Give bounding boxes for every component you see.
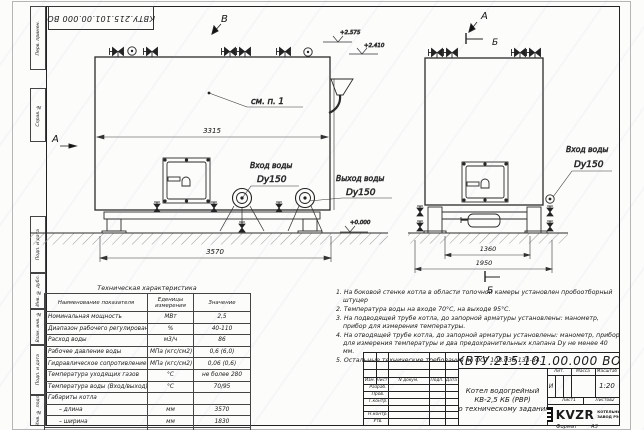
boiler-body-front (425, 58, 543, 205)
tech-th-units: Еденицы измерения (148, 294, 194, 312)
drawing-designation: КВТУ.215.101.00.000 ВО (458, 353, 619, 368)
cell: 70/95 (194, 381, 251, 393)
lit-header: Лит. (547, 368, 571, 375)
cell: не более 280 (194, 369, 251, 381)
scale-header: Масштаб (595, 368, 619, 375)
title-block: Изм. Лист N докум. Подп. Дата Разраб. Пр… (363, 352, 620, 426)
inlet-right-label-1: Вход воды (566, 145, 608, 154)
inlet-left-label-1: Вход воды (250, 161, 292, 170)
sheets-cell: Листов 2 (583, 397, 627, 404)
outlet-label-2: Dy150 (346, 188, 376, 198)
cell: Гидравлическое сопротивление котла (45, 358, 148, 370)
pipe-valve-icon (417, 206, 423, 216)
logo-subtext: КОТЕЛЬНЫЙ ЗАВОД РЭП (597, 410, 619, 419)
cell (194, 393, 251, 405)
scale-value: 1:20 (595, 375, 619, 397)
logo-sub-line2: ЗАВОД РЭП (597, 415, 619, 419)
tech-th-name: Наименование показателя (45, 294, 148, 312)
callout-see-note: см. п. 1 (251, 97, 284, 107)
product-name-line3: по техническому заданию (458, 405, 547, 414)
cell: м3/ч (148, 335, 194, 347)
support-skid-front (424, 207, 547, 233)
pipe-valve-icon (547, 206, 553, 216)
cell: МПа (кгс/см2) (148, 358, 194, 370)
pipe-valve-icon (417, 221, 423, 231)
valve-icon (222, 48, 236, 58)
valve-icon (444, 49, 458, 59)
valve-icon (277, 48, 291, 58)
cell: 0,6 (6,0) (194, 346, 251, 358)
cell: мм (148, 416, 194, 428)
table-row: Диапазон рабочего регулирования%40-110 (45, 323, 251, 335)
view-arrow-a: А (51, 134, 59, 145)
table-row: Расход водым3/ч86 (45, 335, 251, 347)
tech-th-value: Значение (194, 294, 251, 312)
cell: 86 (194, 335, 251, 347)
valve-icon (512, 49, 526, 59)
cell: 0,06 (0,6) (194, 358, 251, 370)
outlet-label-1: Выход воды (336, 174, 384, 183)
kvzr-logo: KVZR КОТЕЛЬНЫЙ ЗАВОД РЭП (547, 407, 619, 422)
front-view (408, 49, 568, 244)
sheet-value: 1 (573, 398, 576, 403)
flue-spout (329, 95, 340, 113)
lit-value: И (547, 375, 555, 397)
sheets-label: Листов (595, 398, 611, 403)
dim-3315: 3315 (203, 127, 221, 135)
drain-valve-icon (211, 202, 217, 212)
inlet-flange (233, 189, 252, 208)
valve-icon (527, 49, 541, 59)
rev-header-izm: Изм. (364, 377, 376, 384)
tech-table-header-row: Наименование показателя Еденицы измерени… (45, 294, 251, 312)
valve-icon (144, 48, 158, 58)
valve-icon (110, 48, 124, 58)
cell: МПа (кгс/см2) (148, 346, 194, 358)
elevation-2575: +2.575 (340, 30, 361, 36)
drain-valve-icon (239, 222, 245, 232)
furnace-door-front (462, 162, 508, 202)
elevation-marks: +2.575 +2.410 +0.000 (323, 30, 385, 232)
dim-1360: 1360 (480, 245, 497, 253)
cell: Номинальная мощность (45, 312, 148, 324)
cell: 1830 (194, 416, 251, 428)
cell: % (148, 323, 194, 335)
cell: мм (148, 404, 194, 416)
cell: Температура воды (Вход/выход) (45, 381, 148, 393)
inlet-right-label-2: Dy150 (574, 160, 604, 170)
cell: 40-110 (194, 323, 251, 335)
table-row: Габариты котла (45, 393, 251, 405)
table-row: Рабочее давление водыМПа (кгс/см2)0,6 (6… (45, 346, 251, 358)
table-row: Температура уходящих газов°Сне более 280 (45, 369, 251, 381)
tech-table: Наименование показателя Еденицы измерени… (44, 293, 251, 430)
inlet-left-label-2: Dy150 (257, 175, 287, 185)
annotations: см. п. 1 Вход воды Dy150 Выход воды Dy15… (208, 92, 612, 201)
elevation-0000: +0.000 (350, 220, 371, 226)
company-logo-cell: KVZR КОТЕЛЬНЫЙ ЗАВОД РЭП (547, 404, 619, 425)
table-row: Температура воды (Вход/выход)°С70/95 (45, 381, 251, 393)
table-row: – длинамм3570 (45, 404, 251, 416)
drain-valve-icon (276, 202, 282, 212)
cell (148, 393, 194, 405)
cell: °С (148, 369, 194, 381)
cell: Расход воды (45, 335, 148, 347)
cell: Диапазон рабочего регулирования (45, 323, 148, 335)
cell: – ширина (45, 416, 148, 428)
role-prov: Пров. (364, 391, 390, 398)
view-label-a: А (480, 11, 488, 22)
format-note: ФорматА3 (556, 424, 636, 430)
product-name: Котел водогрейный КВ-2,5 КБ (РВР) по тех… (458, 368, 547, 429)
cell: °С (148, 381, 194, 393)
format-value: А3 (591, 424, 598, 430)
tech-table-title: Техническая характеристика (44, 284, 250, 292)
role-utv: Утв. (364, 418, 390, 425)
valve-icon (429, 49, 443, 59)
cell: Температура уходящих газов (45, 369, 148, 381)
note-1: 1. На боковой стенке котла в области топ… (336, 289, 620, 305)
table-row: Гидравлическое сопротивление котлаМПа (к… (45, 358, 251, 370)
note-2: 2. Температура воды на входе 70°С, на вы… (336, 306, 620, 314)
rev-header-ndokum: N докум. (388, 377, 429, 384)
role-tkontr: Т.контр. (364, 398, 390, 405)
view-label-v: В (221, 14, 228, 25)
sheet-label: Лист (562, 398, 573, 403)
outlet-flange (296, 189, 315, 208)
role-nkontr: Н.контр. (364, 411, 390, 418)
rev-header-data: Дата (445, 377, 458, 384)
drawing-sheet: Перв. примен. Справ. № Подп. и дата Инв.… (0, 0, 644, 430)
valve-icon (237, 48, 251, 58)
ground-hatch (408, 234, 568, 244)
kvzr-emblem-icon (547, 407, 553, 422)
cell: – длина (45, 404, 148, 416)
ground-hatch (30, 234, 388, 245)
cell: 3570 (194, 404, 251, 416)
pipe-valve-icon (547, 221, 553, 231)
dim-3570: 3570 (206, 248, 224, 256)
cell: Рабочее давление воды (45, 346, 148, 358)
gauge-icon (304, 48, 312, 56)
format-label: Формат (556, 424, 577, 430)
dim-1950: 1950 (476, 259, 493, 267)
note-3: 3. На подводящей трубе котла, до запорно… (336, 315, 620, 331)
cell: Габариты котла (45, 393, 148, 405)
role-razrab: Разраб. (364, 384, 390, 391)
elevation-2410: +2.410 (364, 43, 385, 49)
cell: МВт (148, 312, 194, 324)
section-label-b-top: Б (492, 38, 498, 48)
product-name-line1: Котел водогрейный (466, 387, 540, 396)
mass-header: Масса (571, 368, 595, 375)
table-row: Номинальная мощностьМВт2,5 (45, 312, 251, 324)
gauge-icon (128, 47, 136, 55)
rev-header-list: Лист (376, 377, 388, 384)
sheets-value: 2 (612, 398, 615, 403)
support-skid-side (102, 212, 322, 233)
cell: 2,5 (194, 312, 251, 324)
logo-text: KVZR (556, 408, 595, 422)
furnace-door-side (163, 158, 210, 203)
table-row: – ширинамм1830 (45, 416, 251, 428)
rev-header-podp: Подп. (429, 377, 445, 384)
drain-valve-icon (154, 202, 160, 212)
product-name-line2: КВ-2,5 КБ (РВР) (474, 396, 530, 405)
side-view (30, 47, 388, 245)
